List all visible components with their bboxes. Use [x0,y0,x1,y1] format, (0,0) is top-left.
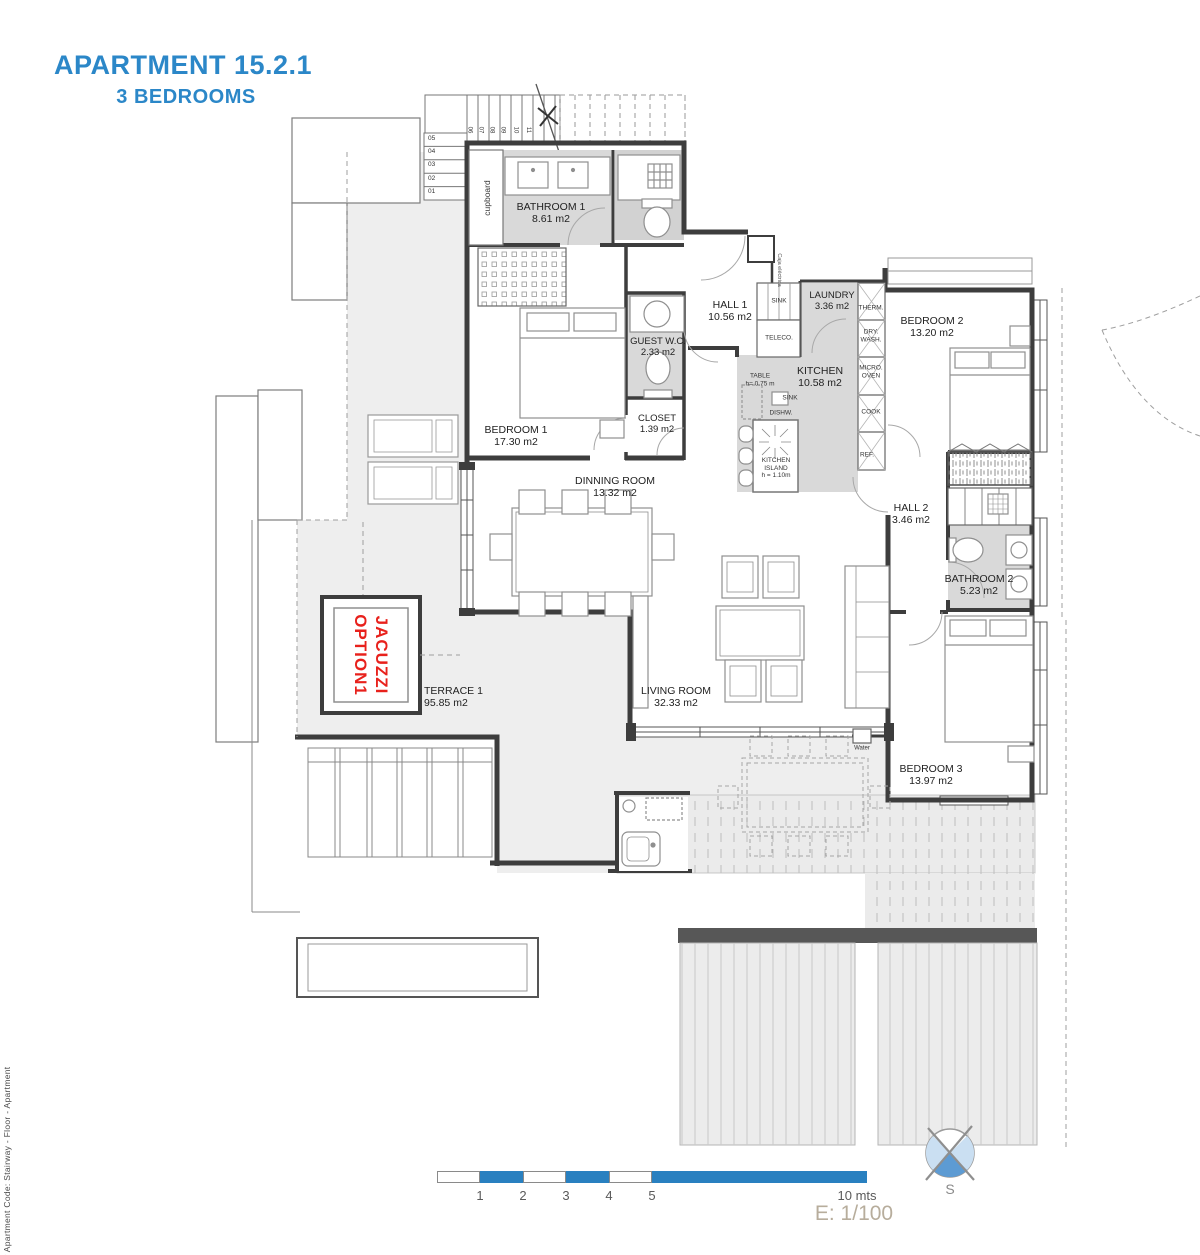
room-name: HALL 1 [708,299,752,311]
room-area: 3.36 m2 [809,301,854,312]
label-caja-electrica: Caja eléctrica [776,253,782,286]
room-area: 1.39 m2 [638,424,676,435]
stair-step-09: 09 [499,127,505,134]
room-name: KITCHEN [797,365,843,377]
room-name: GUEST W.C. [630,336,686,347]
stair-step-01: 01 [428,188,435,195]
label-teleco: TELECO. [765,334,793,342]
label-dry-wash: DRY. WASH. [860,329,881,344]
scale-seg [437,1171,480,1183]
jacuzzi-line2: OPTION1 [350,614,371,696]
room-area: 17.30 m2 [484,436,547,448]
page-subtitle: 3 BEDROOMS [116,86,255,109]
floorplan-drawing [0,0,1200,1255]
label-sink-shaft: SINK [771,297,786,305]
scale-seg [480,1171,523,1183]
room-area: 95.85 m2 [424,697,483,709]
room-label-closet: CLOSET1.39 m2 [638,413,676,435]
room-area: 2.33 m2 [630,347,686,358]
scale-tick-2: 2 [519,1188,526,1203]
room-label-kitchen: KITCHEN10.58 m2 [797,365,843,389]
room-name: BEDROOM 2 [900,315,963,327]
room-area: 10.56 m2 [708,311,752,323]
stair-step-08: 08 [488,127,494,134]
room-name: CLOSET [638,413,676,424]
room-label-bedroom2: BEDROOM 213.20 m2 [900,315,963,339]
compass-south-label: S [945,1181,954,1197]
room-name: TERRACE 1 [424,685,483,697]
stair-step-10: 10 [512,127,518,134]
scale-tick-4: 4 [605,1188,612,1203]
room-area: 5.23 m2 [945,585,1014,597]
stairway-bottom [308,748,492,857]
room-label-bedroom3: BEDROOM 313.97 m2 [899,763,962,787]
scale-end-label: 10 mts [837,1188,876,1203]
stair-step-02: 02 [428,175,435,182]
room-name: BATHROOM 1 [517,201,586,213]
room-label-terrace: TERRACE 195.85 m2 [424,685,483,709]
scale-seg [652,1171,867,1183]
room-area: 13.20 m2 [900,327,963,339]
room-name: BEDROOM 1 [484,424,547,436]
room-area: 32.33 m2 [641,697,711,709]
bedroom1-furniture [478,248,625,438]
label-dishw: DISHW. [769,409,792,417]
floorplan-page: APARTMENT 15.2.1 3 BEDROOMS * Apartment … [0,0,1200,1255]
room-name: LAUNDRY [809,290,854,301]
room-name: DINNING ROOM [575,475,655,487]
stair-step-06: 06 [466,127,472,134]
bedroom2-furniture [948,326,1032,485]
label-therm: THERM. [859,304,884,312]
room-name: HALL 2 [892,502,930,514]
bbq-area [619,797,688,871]
label-table-height: TABLE h= 0.75 m [745,373,774,388]
side-note: * Apartment Code: Stairway - Floor - Apa… [2,968,12,1255]
scale-tick-1: 1 [476,1188,483,1203]
room-area: 8.61 m2 [517,213,586,225]
room-label-hall2: HALL 23.46 m2 [892,502,930,526]
room-label-guest-wc: GUEST W.C.2.33 m2 [630,336,686,358]
page-title: APARTMENT 15.2.1 [54,50,312,81]
room-label-bathroom2: BATHROOM 25.23 m2 [945,573,1014,597]
room-name: LIVING ROOM [641,685,711,697]
scale-note: E: 1/100 [815,1202,893,1226]
room-area: 13.32 m2 [575,487,655,499]
jacuzzi-line1: JACUZZI [371,614,392,696]
label-cook: COOK [861,408,880,416]
label-micro-oven: MICRO. OVEN [859,365,882,380]
room-label-living: LIVING ROOM32.33 m2 [641,685,711,709]
room-area: 13.97 m2 [899,775,962,787]
room-name: BATHROOM 2 [945,573,1014,585]
scale-seg [523,1171,566,1183]
room-label-bathroom1: BATHROOM 18.61 m2 [517,201,586,225]
stair-step-11: 11 [525,127,531,133]
scale-tick-3: 3 [562,1188,569,1203]
stair-step-05: 05 [428,135,435,142]
label-water: Water [854,745,870,753]
scale-seg [609,1171,652,1183]
stair-step-04: 04 [428,148,435,155]
scale-bar [437,1171,867,1183]
jacuzzi-option-label: JACUZZIOPTION1 [350,614,392,696]
label-ref: REF. [860,451,874,459]
stair-step-03: 03 [428,161,435,168]
label-kitchen-island: KITCHEN ISLAND h = 1.10m [761,457,790,480]
room-label-bedroom1: BEDROOM 117.30 m2 [484,424,547,448]
scale-tick-5: 5 [648,1188,655,1203]
stair-step-07: 07 [477,127,483,134]
room-area: 3.46 m2 [892,514,930,526]
room-area: 10.58 m2 [797,377,843,389]
label-cupboard: cupboard [482,180,492,215]
room-name: BEDROOM 3 [899,763,962,775]
scale-seg [566,1171,609,1183]
room-label-laundry: LAUNDRY3.36 m2 [809,290,854,312]
room-label-dinning: DINNING ROOM13.32 m2 [575,475,655,499]
label-sink-kitchen: SINK [782,394,797,402]
room-label-hall1: HALL 110.56 m2 [708,299,752,323]
